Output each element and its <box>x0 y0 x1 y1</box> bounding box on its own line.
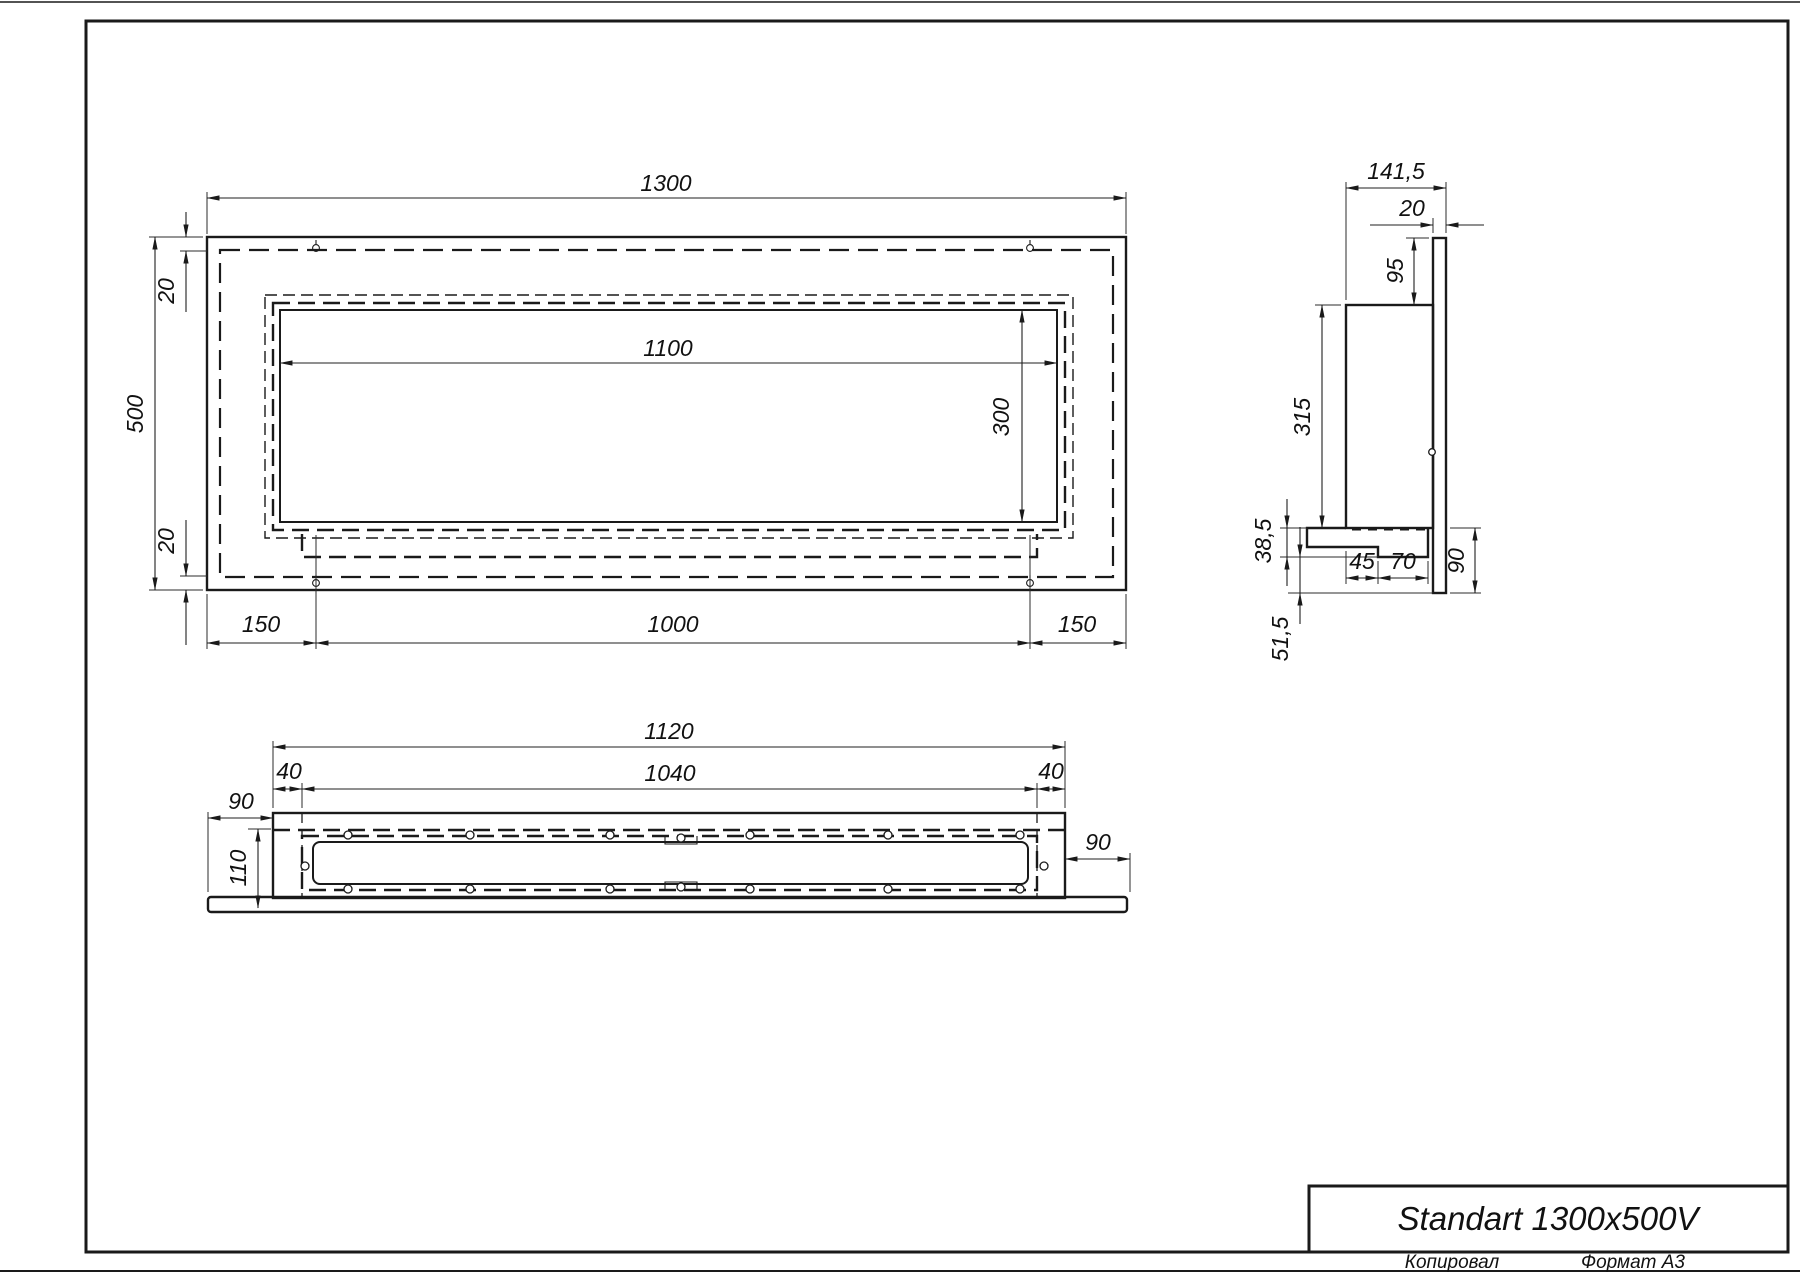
front-view: 1300 500 20 20 1100 300 150 1000 150 <box>122 170 1126 649</box>
dim-side-foot-front: 45 <box>1349 548 1375 574</box>
drawing-frame <box>86 21 1788 1252</box>
title-text: Standart 1300x500V <box>1398 1200 1702 1237</box>
bottom-burner-frame <box>313 842 1028 884</box>
bottom-panel-strip <box>208 897 1127 912</box>
side-view: 141,5 20 95 315 38,5 45 70 90 51,5 <box>1250 158 1484 661</box>
copied-label: Копировал <box>1405 1252 1500 1273</box>
front-panel-hidden-inset <box>220 250 1113 577</box>
dim-side-overall-depth: 141,5 <box>1367 158 1425 184</box>
dim-front-opening-width: 1100 <box>643 335 693 361</box>
dim-front-overall-width: 1300 <box>640 170 691 196</box>
dim-front-hole-left: 150 <box>242 611 281 637</box>
dim-bottom-overhang-left: 90 <box>228 788 254 814</box>
dim-side-bracket-height: 38,5 <box>1250 518 1276 563</box>
title-block: Standart 1300x500V Копировал Формат А3 <box>1309 1186 1788 1273</box>
dim-side-bottom-drop: 51,5 <box>1267 616 1293 661</box>
dim-bottom-body-depth: 110 <box>225 849 251 886</box>
side-screw-hole <box>1429 449 1436 456</box>
dim-front-bottom-inset: 20 <box>153 528 179 555</box>
dim-bottom-inset-left: 40 <box>276 758 302 784</box>
dim-side-top-drop: 95 <box>1382 258 1408 284</box>
dim-bottom-body-width: 1120 <box>644 718 694 744</box>
side-extension-lines <box>1280 182 1481 593</box>
dim-bottom-inset-right: 40 <box>1038 758 1064 784</box>
dim-front-hole-spacing: 1000 <box>647 611 698 637</box>
dim-bottom-overhang-right: 90 <box>1085 829 1111 855</box>
front-extension-lines <box>149 192 1126 649</box>
drawing-canvas: 1300 500 20 20 1100 300 150 1000 150 <box>0 0 1800 1273</box>
opening-lip-hidden <box>265 295 1073 538</box>
dim-side-body-height: 315 <box>1289 398 1315 437</box>
dim-side-foot-back: 70 <box>1390 548 1416 574</box>
dim-side-flange-bottom: 90 <box>1443 548 1469 574</box>
dim-front-hole-right: 150 <box>1058 611 1097 637</box>
dim-front-overall-height: 500 <box>122 395 148 434</box>
dim-front-opening-height: 300 <box>988 398 1014 437</box>
side-body <box>1346 305 1433 528</box>
dim-front-top-inset: 20 <box>153 278 179 305</box>
format-label: Формат А3 <box>1581 1252 1685 1273</box>
dim-side-flange-thickness: 20 <box>1398 195 1425 221</box>
drawing-sheet: 1300 500 20 20 1100 300 150 1000 150 <box>0 0 1800 1273</box>
bottom-view: 1120 1040 40 40 90 110 90 <box>208 718 1130 912</box>
side-front-flange <box>1433 238 1446 593</box>
bottom-body-outline <box>273 813 1065 898</box>
dim-bottom-opening-width: 1040 <box>644 760 695 786</box>
mounting-hole-symbol <box>313 240 1034 586</box>
